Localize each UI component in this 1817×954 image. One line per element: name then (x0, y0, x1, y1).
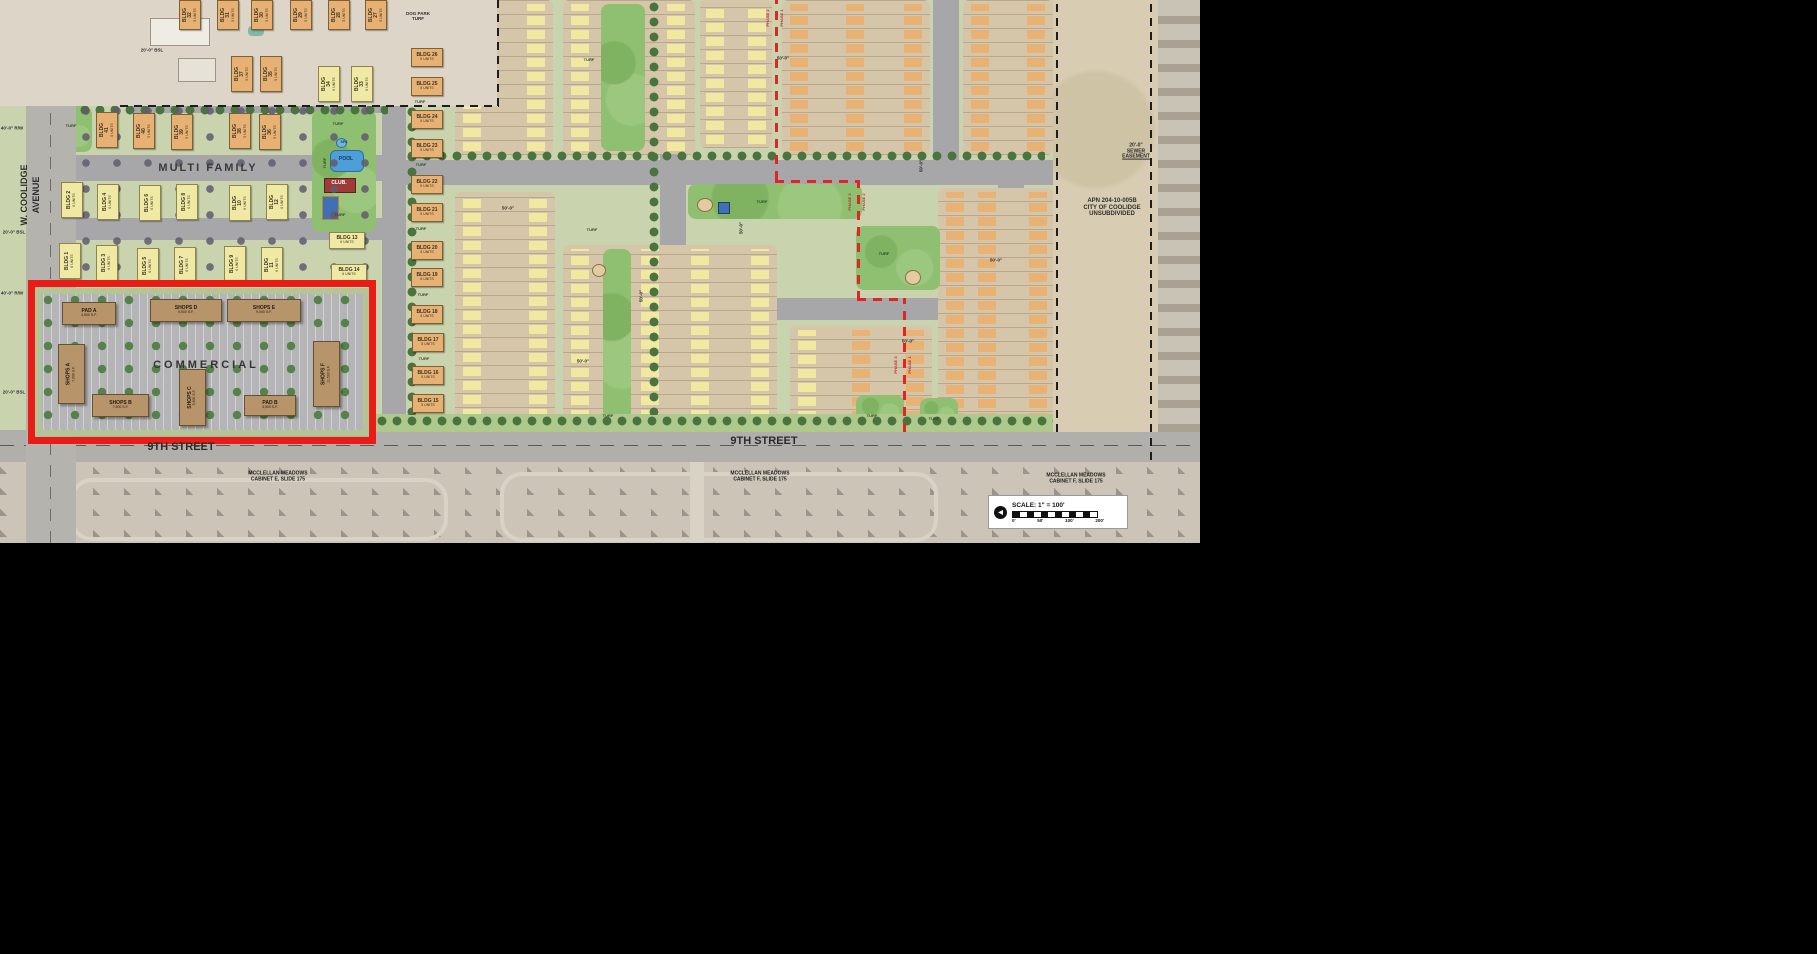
aerial-east-homes (1158, 0, 1200, 432)
house-row (463, 196, 481, 418)
house-row (748, 4, 766, 144)
building-bldg-25: BLDG 255 UNITS (411, 77, 443, 96)
building-bldg-17: BLDG 175 UNITS (412, 333, 444, 352)
dim-bsl: 20'-0" BSL (141, 47, 163, 52)
street-label-ninth-east: 9TH STREET (730, 435, 797, 447)
building-bldg-24: BLDG 245 UNITS (411, 110, 443, 129)
building-bldg-16: BLDG 165 UNITS (412, 366, 444, 385)
turf-label: TURF (584, 58, 595, 62)
site-plan-map: BLDG 325 UNITS BLDG 315 UNITS BLDG 305 U… (0, 0, 1200, 543)
turf-corridor-south (603, 249, 631, 419)
sewer-easement-line (1150, 0, 1152, 460)
phase-line-seg-1 (775, 0, 778, 180)
turf-pocket-east (856, 226, 940, 290)
boundary-nw-parcel-south (120, 105, 499, 107)
playground-icon (697, 198, 713, 212)
spa-label: SPA (341, 141, 348, 145)
scale-bar (1012, 511, 1098, 518)
building-bldg-4: BLDG 46 UNITS (97, 184, 119, 220)
dim-bsl: 20'-0" BSL (3, 229, 25, 234)
phase-label: PHASE 2 (862, 193, 866, 210)
dim-rw: 40'-0" R/W (1, 290, 23, 295)
dim-bsl: 20'-0" BSL (3, 389, 25, 394)
residential-block-2 (563, 0, 695, 155)
house-row (1029, 192, 1047, 422)
scale-contents: SCALE: 1" = 100' 0' 50' 100' 200' (1012, 502, 1104, 523)
turf-label: TURF (416, 227, 427, 231)
house-row (691, 249, 709, 419)
building-bldg-12: BLDG 126 UNITS (266, 184, 288, 220)
residential-block-3 (700, 0, 772, 148)
turf-label: TURF (66, 124, 77, 128)
building-bldg-3: BLDG 36 UNITS (96, 245, 118, 281)
mcclellan-label-center: MCCLELLAN MEADOWSCABINET F, SLIDE 175 (730, 471, 789, 482)
dim-50: 50'-0" (502, 205, 514, 210)
building-bldg-39: BLDG 395 UNITS (171, 114, 193, 150)
building-bldg-2: BLDG 26 UNITS (61, 182, 83, 218)
building-bldg-35: BLDG 355 UNITS (260, 56, 282, 92)
building-bldg-37: BLDG 375 UNITS (231, 56, 253, 92)
building-bldg-15: BLDG 155 UNITS (412, 394, 444, 413)
house-row (571, 249, 589, 419)
house-row (706, 4, 724, 144)
phase-label: PHASE 1 (780, 9, 784, 26)
north-arrow-icon: ◀ (994, 506, 1007, 519)
dim-50: 50'-0" (777, 55, 789, 60)
building-bldg-28: BLDG 285 UNITS (328, 0, 350, 30)
turf-label: TURF (603, 414, 614, 418)
phase-label: PHASE 3 (894, 356, 898, 373)
building-bldg-27: BLDG 275 UNITS (365, 0, 387, 30)
aerial-street-loop (70, 478, 448, 541)
existing-building (178, 58, 216, 82)
house-row (571, 4, 589, 151)
building-bldg-19: BLDG 195 UNITS (411, 268, 443, 287)
dog-park-label: DOG PARKTURF (406, 11, 430, 21)
building-bldg-30: BLDG 305 UNITS (251, 0, 273, 30)
phase-label: PHASE 3 (848, 193, 852, 210)
treeline-center (405, 150, 1045, 162)
house-row (1027, 4, 1045, 151)
house-row (904, 4, 922, 151)
turf-label: TURF (867, 414, 878, 418)
building-bldg-21: BLDG 215 UNITS (411, 203, 443, 222)
road-horizontal-center (405, 160, 1053, 185)
mcclellan-label-west: MCCLELLAN MEADOWSCABINET E, SLIDE 175 (248, 471, 307, 482)
turf-label: TURF (757, 200, 768, 204)
coolidge-line-1: W. COOLIDGE (19, 164, 29, 225)
building-bldg-9: BLDG 96 UNITS (224, 246, 246, 282)
building-bldg-34: BLDG 346 UNITS (318, 66, 340, 102)
playground-icon (905, 270, 921, 285)
residential-block-5-phase1 (963, 0, 1053, 155)
turf-label: TURF (323, 158, 327, 169)
house-row (751, 249, 769, 419)
site-boundary-east (1056, 0, 1058, 432)
house-row (667, 4, 685, 151)
building-bldg-22: BLDG 225 UNITS (411, 175, 443, 194)
boundary-nw-parcel-east (497, 0, 499, 106)
area-label-multi-family: MULTI FAMILY (158, 162, 257, 174)
treeline-v2 (648, 0, 660, 415)
sewer-easement-label: 20'-0"SEWEREASEMENT (1122, 144, 1150, 161)
building-bldg-38: BLDG 385 UNITS (229, 113, 251, 149)
residential-block-8-phase1 (938, 188, 1053, 426)
building-bldg-7: BLDG 76 UNITS (174, 247, 196, 283)
dim-50: 50'-0" (902, 338, 914, 343)
building-bldg-11: BLDG 116 UNITS (261, 247, 283, 283)
house-row (527, 4, 545, 151)
turf-label: TURF (929, 417, 940, 421)
building-bldg-6: BLDG 66 UNITS (139, 185, 161, 221)
playground-icon (592, 264, 606, 277)
dim-50: 50'-0" (638, 290, 643, 302)
building-bldg-1: BLDG 16 UNITS (59, 243, 81, 279)
dim-50: 50'-0" (918, 160, 923, 172)
coolidge-line-2: AVENUE (31, 164, 41, 225)
house-row (971, 4, 989, 151)
building-bldg-36: BLDG 365 UNITS (259, 114, 281, 150)
building-bldg-20: BLDG 205 UNITS (411, 241, 443, 260)
scale-ticks: 0' 50' 100' 200' (1012, 518, 1104, 523)
building-bldg-10: BLDG 106 UNITS (229, 185, 251, 221)
turf-label: TURF (879, 252, 890, 256)
building-bldg-33: BLDG 336 UNITS (351, 66, 373, 102)
street-label-coolidge: W. COOLIDGE AVENUE (19, 164, 41, 225)
house-row (946, 192, 964, 422)
phase-line-seg-2 (775, 180, 860, 183)
area-label-commercial: COMMERCIAL (153, 359, 259, 371)
mcclellan-label-east: MCCLELLAN MEADOWSCABINET F, SLIDE 175 (1046, 473, 1105, 484)
building-bldg-14: BLDG 146 UNITS (331, 264, 367, 281)
phase-label: PHASE 1 (908, 356, 912, 373)
central-turf-band (688, 184, 862, 219)
residential-block-4-phase1 (782, 0, 930, 155)
turf-label: TURF (416, 163, 427, 167)
club-label: CLUB. (331, 181, 346, 187)
dim-rw: 40'-0" R/W (1, 125, 23, 130)
turf-label: TURF (333, 122, 344, 126)
turf-label: TURF (335, 213, 346, 217)
building-bldg-5: BLDG 56 UNITS (137, 248, 159, 284)
residential-block-6 (455, 192, 555, 422)
building-bldg-26: BLDG 265 UNITS (411, 48, 443, 67)
phase-label: PHASE 2 (766, 9, 770, 26)
aerial-street-vertical (690, 460, 704, 543)
building-bldg-40: BLDG 405 UNITS (133, 113, 155, 149)
turf-label: TURF (415, 100, 426, 104)
phase-line-seg-4 (857, 298, 905, 301)
building-bldg-23: BLDG 235 UNITS (411, 139, 443, 158)
street-label-ninth-west: 9TH STREET (147, 441, 214, 453)
building-bldg-18: BLDG 185 UNITS (411, 305, 443, 324)
screenshot-canvas: BLDG 325 UNITS BLDG 315 UNITS BLDG 305 U… (0, 0, 1817, 954)
house-row (798, 330, 816, 420)
phase-line-seg-5 (903, 298, 906, 432)
turf-corridor-north (601, 4, 645, 151)
house-row (529, 196, 547, 418)
turf-label: TURF (418, 293, 429, 297)
turf-label: TURF (587, 228, 598, 232)
building-bldg-41: BLDG 415 UNITS (96, 112, 118, 148)
building-bldg-31: BLDG 315 UNITS (217, 0, 239, 30)
scale-bar-box: ◀ SCALE: 1" = 100' 0' 50' 100' 200' (988, 495, 1128, 529)
dim-50: 50'-0" (990, 257, 1002, 262)
building-bldg-32: BLDG 325 UNITS (179, 0, 201, 30)
scale-label: SCALE: 1" = 100' (1012, 502, 1104, 509)
house-row (846, 4, 864, 151)
pool-label: POOL (339, 157, 353, 163)
building-bldg-29: BLDG 295 UNITS (290, 0, 312, 30)
building-bldg-13: BLDG 136 UNITS (329, 232, 365, 249)
phase-line-seg-3 (857, 180, 860, 300)
road-vertical-3 (933, 0, 959, 165)
dim-50: 50'-0" (738, 222, 743, 234)
dim-50: 50'-0" (577, 358, 589, 363)
house-row (978, 192, 996, 422)
aerial-street-loop-2 (500, 472, 938, 542)
apn-parcel-label: APN 204-10-005BCITY OF COOLIDGEUNSUBDIVI… (1083, 198, 1140, 218)
turf-label: TURF (419, 357, 430, 361)
house-row (790, 4, 808, 151)
building-bldg-8: BLDG 86 UNITS (176, 184, 198, 220)
playground-icon (718, 202, 730, 214)
